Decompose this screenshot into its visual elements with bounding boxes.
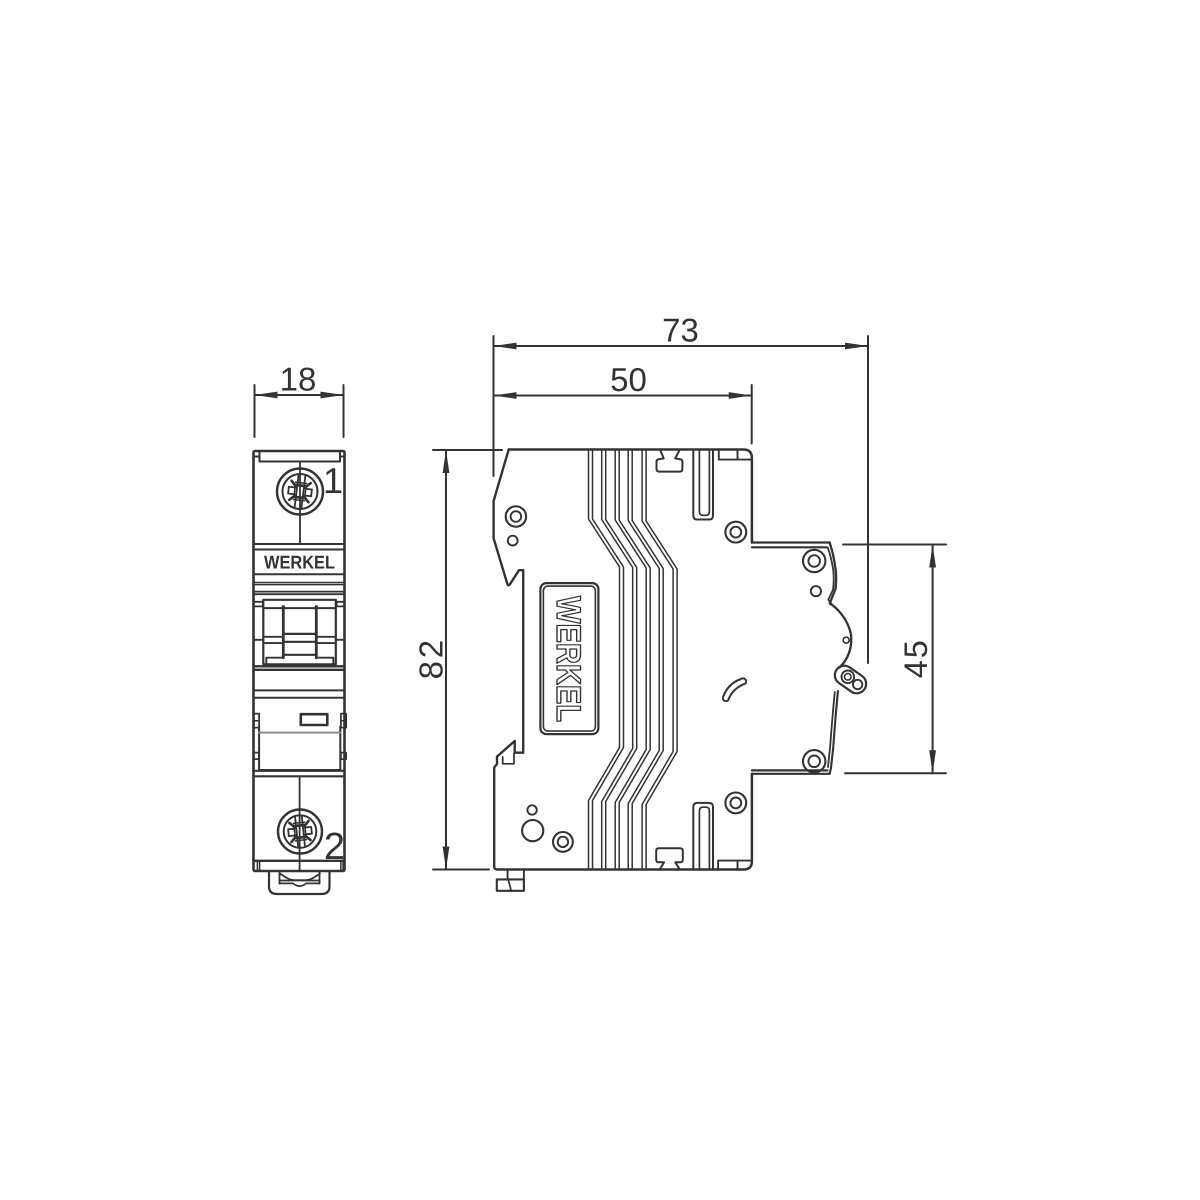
svg-text:WERKEL: WERKEL — [549, 596, 587, 722]
svg-text:45: 45 — [898, 640, 934, 678]
svg-text:WERKEL: WERKEL — [264, 551, 335, 572]
svg-text:18: 18 — [280, 360, 317, 397]
svg-text:73: 73 — [662, 311, 699, 348]
svg-text:1: 1 — [323, 460, 343, 501]
svg-text:50: 50 — [610, 361, 647, 398]
